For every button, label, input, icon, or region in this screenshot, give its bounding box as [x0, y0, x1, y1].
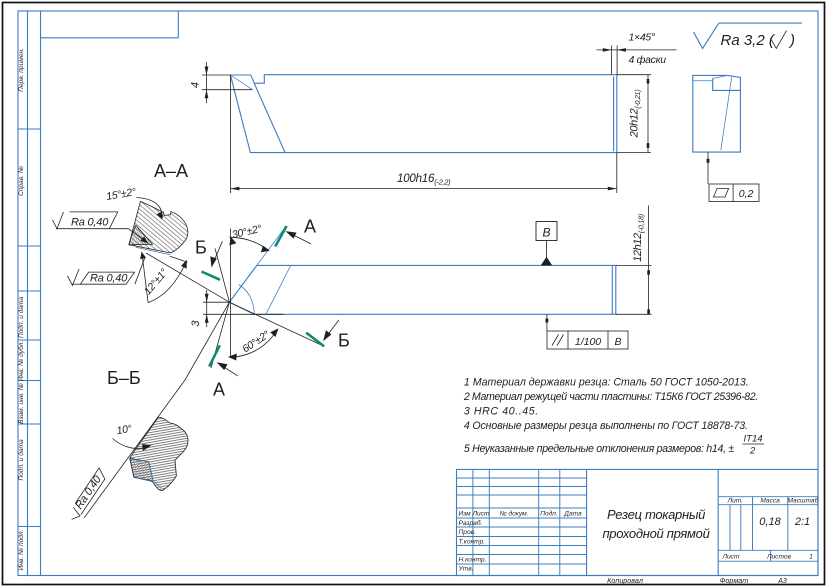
svg-text:Б: Б: [338, 331, 350, 351]
svg-text:1/100: 1/100: [575, 336, 601, 348]
svg-text:4: 4: [190, 82, 202, 88]
svg-text:1 Материал державки резца: Ста: 1 Материал державки резца: Сталь 50 ГОСТ…: [464, 377, 749, 389]
svg-text:Утв.: Утв.: [458, 566, 474, 573]
svg-text:Ra 0,40: Ra 0,40: [90, 273, 128, 285]
svg-text:2 Материал режущей части пласт: 2 Материал режущей части пластины: Т15К6…: [463, 391, 758, 403]
svg-text:В: В: [542, 226, 550, 240]
svg-text:Масса: Масса: [760, 498, 780, 505]
svg-text:Н.контр.: Н.контр.: [459, 557, 487, 564]
svg-text:Резец токарный: Резец токарный: [607, 507, 705, 522]
svg-text:Лист: Лист: [472, 511, 490, 518]
svg-text:Копировал: Копировал: [607, 576, 643, 585]
svg-text:IT14: IT14: [744, 434, 763, 445]
svg-text:А–А: А–А: [154, 161, 188, 181]
svg-text:1: 1: [809, 554, 813, 561]
svg-text:Подп.: Подп.: [540, 510, 558, 518]
svg-text:Б: Б: [195, 238, 207, 258]
svg-text:А: А: [213, 380, 225, 400]
svg-text:3: 3: [190, 320, 202, 327]
svg-text:Инв. № подл.: Инв. № подл.: [17, 529, 25, 570]
svg-text:Разраб.: Разраб.: [459, 519, 483, 527]
svg-text:Справ. №: Справ. №: [18, 166, 25, 196]
svg-text:0,2: 0,2: [739, 188, 754, 200]
svg-text:2: 2: [749, 446, 756, 457]
svg-text:5 Неуказанные предельные откло: 5 Неуказанные предельные отклонения разм…: [464, 443, 734, 455]
svg-text:Взам. инв. №: Взам. инв. №: [18, 383, 25, 424]
svg-text:Дата: Дата: [563, 511, 582, 518]
svg-text:Т.контр.: Т.контр.: [459, 539, 486, 546]
svg-text:А: А: [304, 217, 316, 237]
svg-text:4 Основные размеры резца выпол: 4 Основные размеры резца выполнены по ГО…: [464, 420, 748, 432]
svg-text:4 фаски: 4 фаски: [629, 54, 667, 66]
svg-text:Листов: Листов: [766, 554, 792, 561]
svg-text:Подп. и дата: Подп. и дата: [17, 297, 25, 339]
svg-text:Изм: Изм: [458, 511, 471, 518]
svg-text:Формат: Формат: [720, 576, 749, 585]
svg-text:А3: А3: [777, 576, 787, 585]
svg-text:Ra 0,40: Ra 0,40: [71, 217, 109, 229]
svg-text:3 HRC 40..45.: 3 HRC 40..45.: [464, 406, 539, 418]
svg-text:Пров.: Пров.: [459, 529, 477, 536]
svg-text:проходной прямой: проходной прямой: [602, 526, 709, 541]
svg-text:): ): [788, 32, 795, 49]
svg-text:0,18: 0,18: [759, 516, 781, 528]
svg-text:Подп. и дата: Подп. и дата: [17, 439, 25, 481]
svg-text:Масштаб: Масштаб: [787, 497, 818, 505]
svg-text:1×45°: 1×45°: [629, 32, 655, 44]
svg-text:Б–Б: Б–Б: [107, 368, 141, 388]
svg-text:Ra 3,2 (: Ra 3,2 (: [721, 32, 776, 49]
svg-text:Лит.: Лит.: [727, 498, 744, 505]
svg-text:Перв. примен.: Перв. примен.: [18, 48, 25, 92]
svg-text:№ докум.: № докум.: [499, 510, 528, 518]
svg-text:В: В: [614, 336, 621, 348]
svg-text:Лист: Лист: [722, 554, 740, 561]
svg-text:Инв. № дубл.: Инв. № дубл.: [17, 341, 25, 382]
svg-text:2:1: 2:1: [794, 516, 810, 528]
